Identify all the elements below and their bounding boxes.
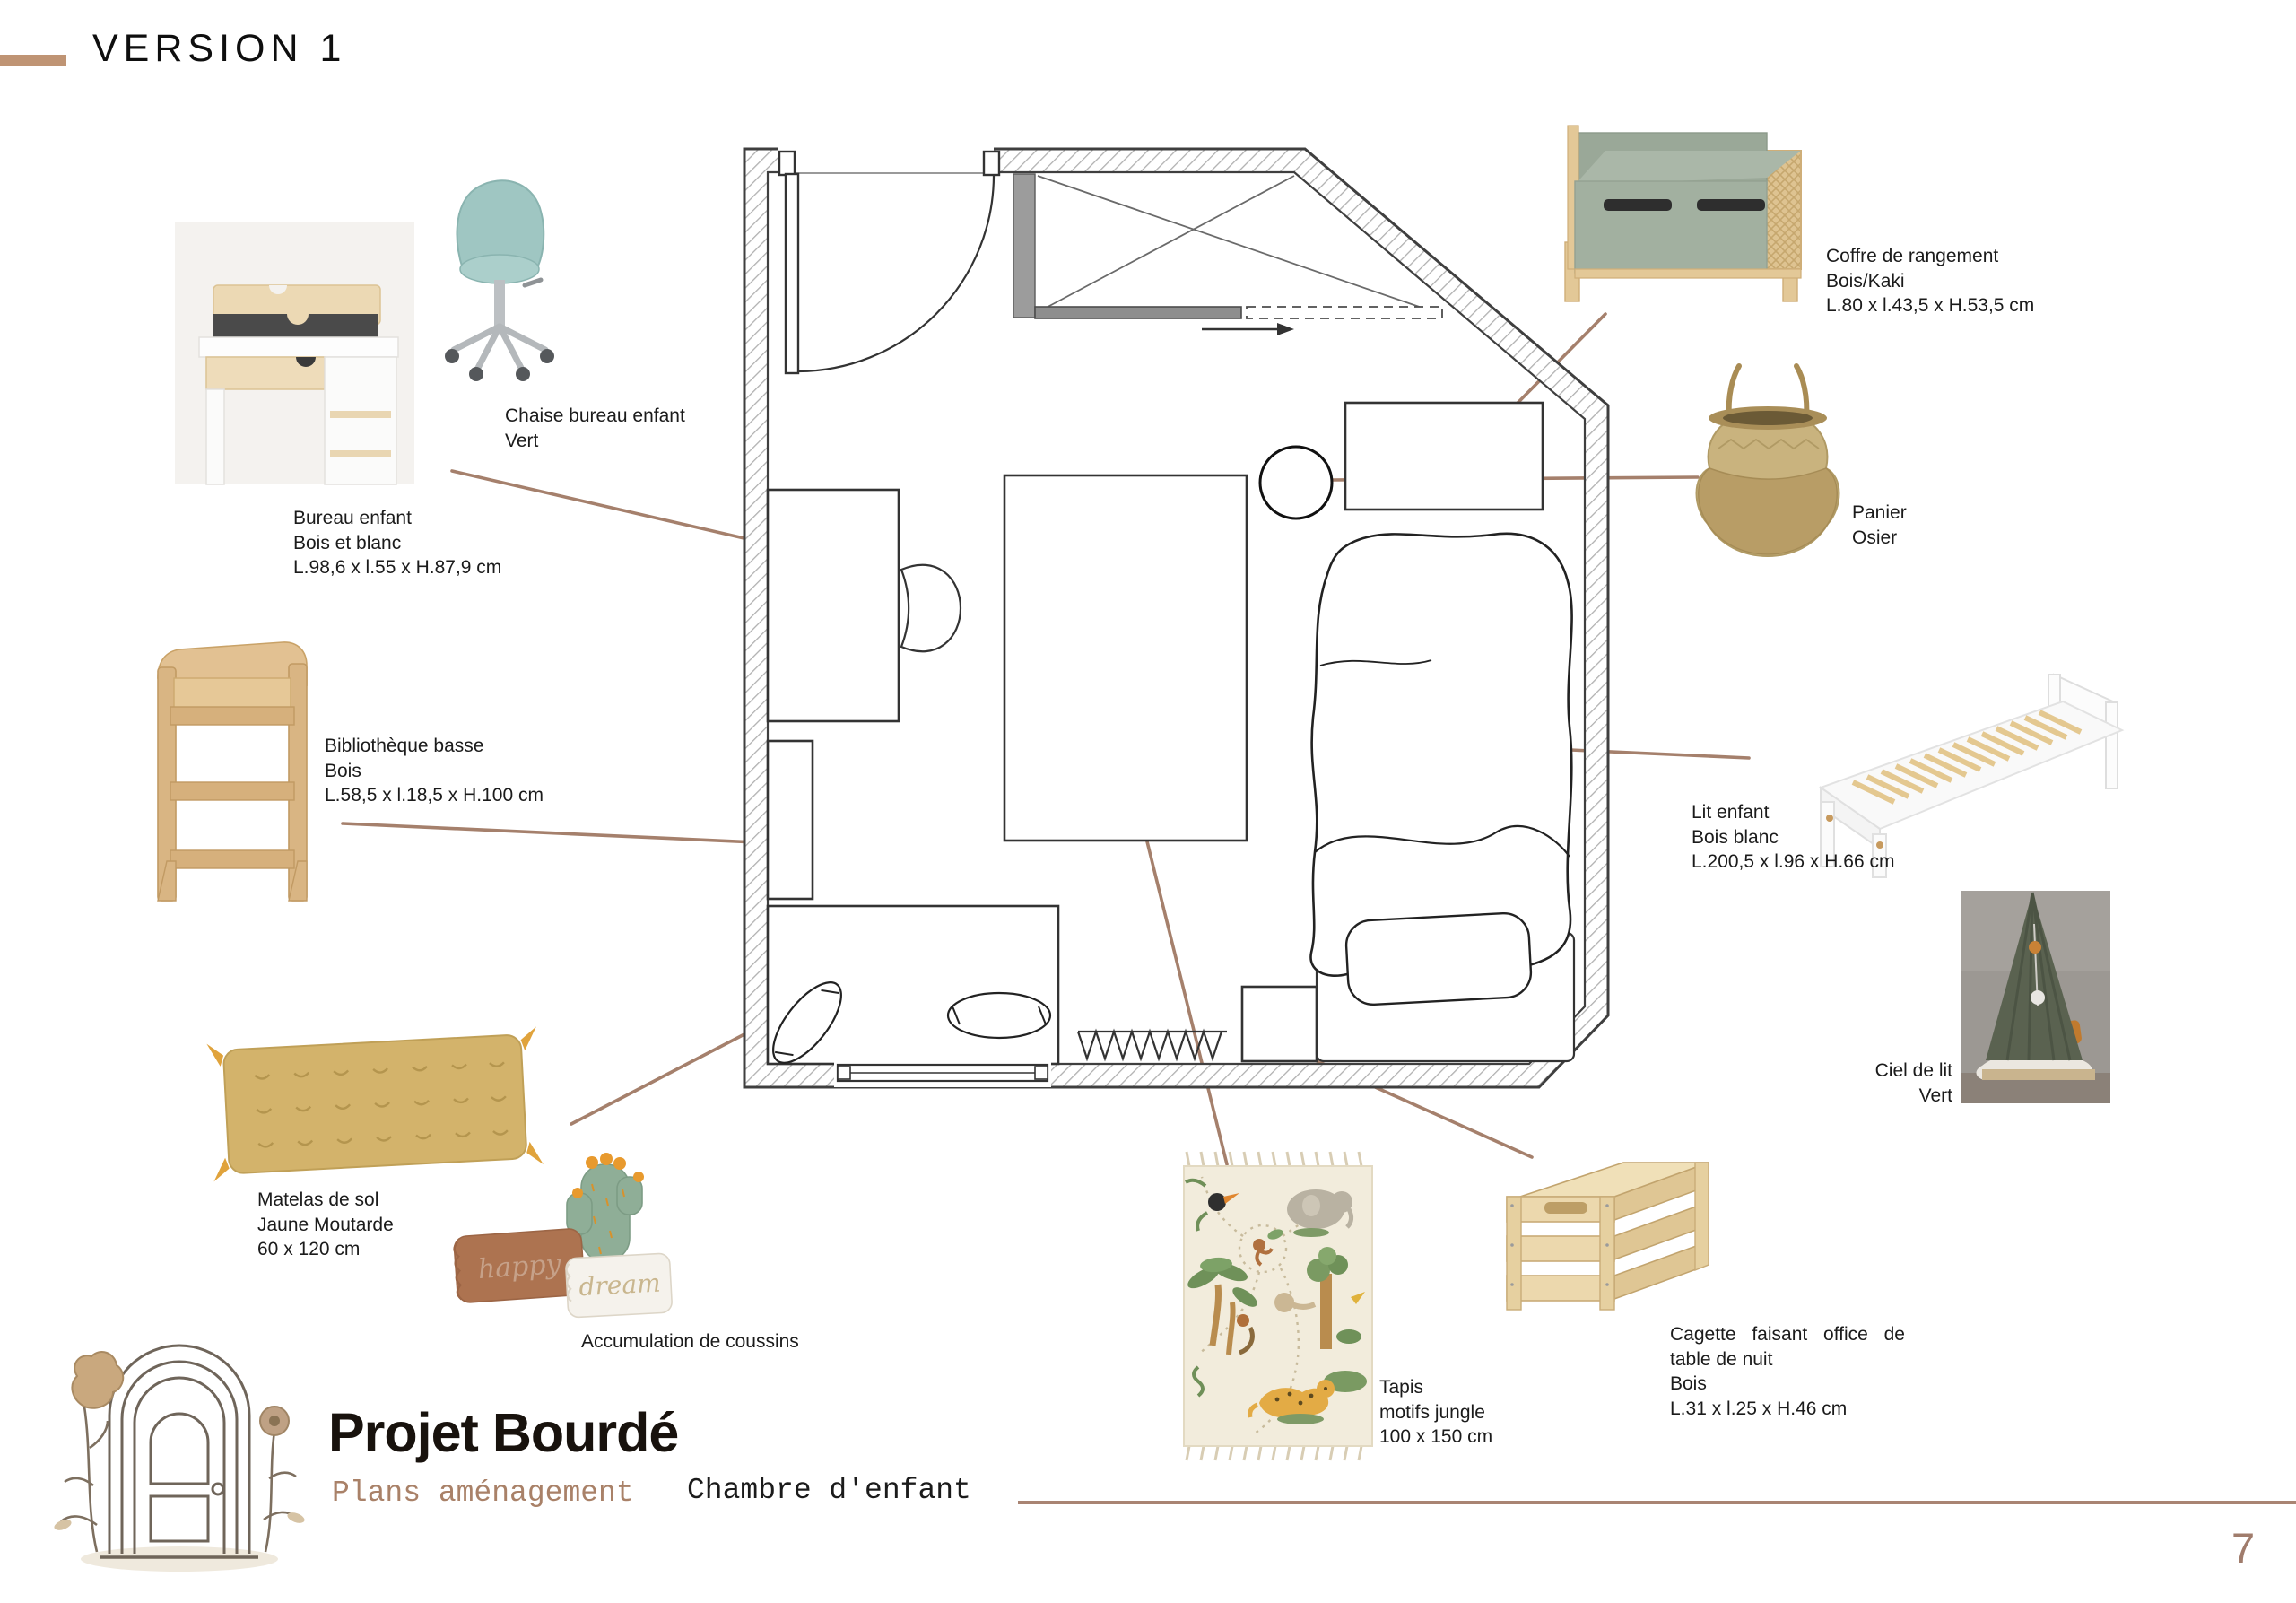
connector-bibliotheque [343,823,796,844]
label-line: Coffre de rangement [1826,244,2034,269]
label-line: Vert [1800,1084,1952,1109]
bookshelf-image [158,642,307,901]
label-line: 60 x 120 cm [257,1237,394,1262]
label-line: Accumulation de coussins [581,1329,799,1355]
label-line: L.58,5 x l.18,5 x H.100 cm [325,783,544,808]
label-line: Bois [1670,1372,1905,1397]
happy-cushion-text: happy [477,1249,563,1285]
label-line: motifs jungle [1379,1400,1492,1425]
label-line: Bureau enfant [293,506,501,531]
label-line: Panier [1852,501,1907,526]
plan-door [778,146,999,373]
label-panier: Panier Osier [1852,501,1907,550]
plan-basket [1260,447,1332,518]
label-line: Bois [325,759,544,784]
label-line: L.80 x l.43,5 x H.53,5 cm [1826,293,2034,318]
plan-bed [1310,534,1574,1061]
label-line: Bois et blanc [293,531,501,556]
brand-logo [53,1346,306,1572]
happy-cushion: happy [454,1228,586,1303]
plan-bookshelf [768,741,813,899]
label-line: Chaise bureau enfant [505,404,685,429]
brand-title: Projet Bourdé [328,1401,678,1464]
label-ciel: Ciel de lit Vert [1800,1059,1952,1108]
plan-window [834,1062,1051,1087]
label-lit: Lit enfant Bois blanc L.200,5 x l.96 x H… [1692,800,1894,875]
label-line: Osier [1852,526,1907,551]
label-line: 100 x 150 cm [1379,1424,1492,1450]
label-line: Cagette faisant office de [1670,1322,1905,1347]
label-line: Tapis [1379,1375,1492,1400]
label-line: Jaune Moutarde [257,1213,394,1238]
label-line: Vert [505,429,685,454]
label-line: Matelas de sol [257,1188,394,1213]
plan-desk [768,490,899,721]
plan-rug [1004,475,1247,841]
brand-subtitle: Plans aménagement [332,1477,634,1510]
plan-desk-chair [901,565,961,651]
label-line: Ciel de lit [1800,1059,1952,1084]
label-line: Lit enfant [1692,800,1894,825]
basket-image [1697,366,1839,556]
label-bureau: Bureau enfant Bois et blanc L.98,6 x l.5… [293,506,501,580]
plan-closet [1013,174,1442,335]
label-line: Bois blanc [1692,825,1894,850]
dream-cushion-text: dream [578,1268,662,1302]
cushions-image: happy dream [454,1153,673,1318]
canopy-image [1961,891,2110,1103]
footer-rule [1018,1501,2296,1504]
label-coffre: Coffre de rangement Bois/Kaki L.80 x l.4… [1826,244,2034,318]
plan-radiator [1078,1032,1227,1059]
chest-image [1565,126,1801,301]
label-coussins: Accumulation de coussins [581,1329,799,1355]
label-tapis: Tapis motifs jungle 100 x 150 cm [1379,1375,1492,1450]
label-line: L.31 x l.25 x H.46 cm [1670,1397,1905,1422]
label-line: L.200,5 x l.96 x H.66 cm [1692,849,1894,875]
label-line: table de nuit [1670,1347,1905,1372]
plan-nightstand [1242,987,1317,1061]
label-line: Bois/Kaki [1826,269,2034,294]
plan-floor-mattress [761,906,1058,1074]
label-line: Bibliothèque basse [325,734,544,759]
floor-mattress-image [206,1026,544,1181]
chair-image [445,180,554,381]
dream-cushion: dream [565,1253,672,1318]
rug-image [1184,1152,1372,1460]
label-line: L.98,6 x l.55 x H.87,9 cm [293,555,501,580]
label-cagette: Cagette faisant office de table de nuit … [1670,1322,1905,1421]
crate-image [1507,1163,1709,1310]
section-title: Chambre d'enfant [687,1474,971,1507]
plan-chest [1345,403,1543,510]
page-number: 7 [2231,1523,2255,1573]
floor-plan [744,146,1608,1087]
label-matelas: Matelas de sol Jaune Moutarde 60 x 120 c… [257,1188,394,1262]
desk-image [175,222,414,484]
label-biblio: Bibliothèque basse Bois L.58,5 x l.18,5 … [325,734,544,808]
moodboard-page: VERSION 1 [0,0,2296,1603]
label-chaise: Chaise bureau enfant Vert [505,404,685,453]
